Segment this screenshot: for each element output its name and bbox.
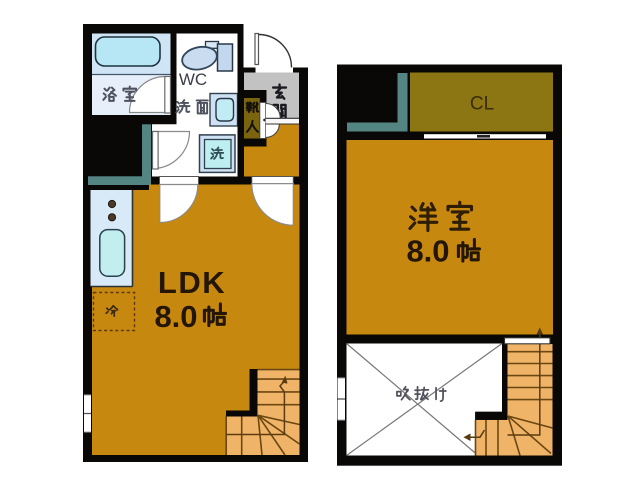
- svg-text:WC: WC: [179, 70, 207, 89]
- svg-text:CL: CL: [470, 94, 494, 115]
- svg-text:8.0: 8.0: [154, 299, 197, 334]
- svg-text:8.0: 8.0: [406, 234, 449, 269]
- svg-text:LDK: LDK: [158, 265, 226, 300]
